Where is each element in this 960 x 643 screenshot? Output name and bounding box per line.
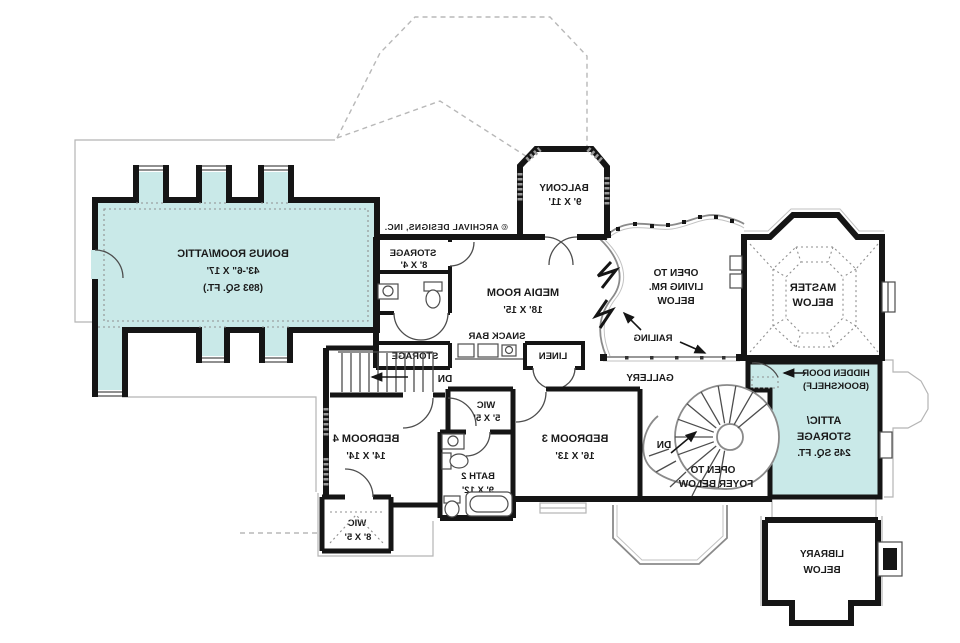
attic-label-3: 245 SQ. FT.	[797, 448, 851, 459]
master-dims: BELOW	[792, 297, 834, 309]
toilet-icon-3	[445, 501, 459, 517]
attic-label-2: STORAGE	[797, 431, 851, 443]
railing-label: RAILING	[633, 333, 672, 344]
wic-small-label: WIC	[477, 400, 496, 411]
balcony-label: BALCONY	[539, 183, 589, 194]
upper-storage-bath-media: STORAGE 8' X 4' MEDIA ROOM 18' X 15' SNA…	[376, 237, 624, 389]
bedroom3-label: BEDROOM 3	[542, 433, 609, 445]
spiral-dn-label: DN	[657, 440, 671, 451]
bonus-room-label: BONUS ROOM/ATTIC	[177, 248, 289, 260]
snack-bar-label: SNACK BAR	[468, 331, 525, 342]
hidden-door-label: HIDDEN DOOR	[802, 368, 870, 379]
toilet-icon-2	[450, 454, 468, 468]
open-living-line1: OPEN TO	[653, 268, 698, 279]
attic-label-1: ATTIC/	[807, 415, 842, 427]
bedroom3-dims: 16' X 13'	[555, 451, 594, 462]
wic-small-door-swing	[448, 398, 476, 426]
railing-arrow-up-icon	[624, 313, 641, 330]
wic-small-dims: 5' X 5'	[474, 413, 501, 424]
media-room-label: MEDIA ROOM	[487, 287, 559, 299]
wic-bedroom4-door-swing	[345, 469, 373, 497]
attic-window	[880, 432, 892, 458]
hidden-door-sub: (BOOKSHELF)	[803, 381, 869, 392]
gallery-label: GALLERY	[626, 373, 674, 384]
storage-upper-label: STORAGE	[390, 248, 437, 259]
storage-door-swing	[450, 242, 474, 266]
toilet-icon	[426, 290, 440, 308]
open-to-living: OPEN TO LIVING RM. BELOW RAILING	[604, 215, 744, 353]
storage-upper-dims: 8' X 4'	[401, 260, 428, 271]
bonus-room-walls	[95, 168, 377, 394]
stairs-dn-label: DN	[438, 374, 452, 385]
bedroom3-door-swing	[516, 392, 546, 422]
bedroom4-door-swing	[403, 398, 433, 428]
spiral-stair: DN OPEN TO FOYER BELOW	[643, 385, 779, 496]
sink-icon	[383, 286, 393, 296]
chimney	[878, 542, 902, 576]
balcony: BALCONY 9' X 11'	[520, 149, 607, 265]
floor-plan-page: BONUS ROOM/ATTIC 43'-6" X 17' (893 SQ. F…	[0, 0, 960, 643]
upper-bath	[376, 282, 450, 313]
media-curved-wall	[596, 239, 624, 356]
bay-window-below-outline	[540, 503, 727, 564]
bath2-label: BATH 2	[461, 471, 495, 482]
gallery: GALLERY	[600, 354, 743, 384]
balcony-door-swing	[545, 237, 577, 265]
master-below: MASTER BELOW	[730, 215, 895, 358]
wic-bedroom4-label: WIC	[348, 518, 367, 529]
open-foyer-line1: OPEN TO	[690, 465, 735, 476]
linen-closet: LINEN	[525, 343, 583, 389]
bedroom4-label: BEDROOM 4	[332, 433, 400, 445]
bonus-room-dims: 43'-6" X 17'	[207, 266, 260, 277]
wic-bedroom4-dims: 8' X 5'	[345, 532, 372, 543]
designer-credit: © ARCHIVAL DESIGNS, INC.	[384, 222, 507, 232]
snack-bar: SNACK BAR	[455, 331, 526, 359]
master-label: MASTER	[790, 282, 837, 294]
floor-plan-drawing: BONUS ROOM/ATTIC 43'-6" X 17' (893 SQ. F…	[0, 0, 960, 643]
double-door-swing	[394, 313, 448, 340]
linen-label: LINEN	[539, 351, 568, 362]
bonus-door-gap	[91, 250, 99, 279]
balcony-dims: 9' X 11'	[548, 197, 581, 208]
open-foyer-line2: FOYER BELOW	[678, 479, 753, 490]
railing-arrow-down-icon	[680, 342, 705, 353]
bonus-room: BONUS ROOM/ATTIC 43'-6" X 17' (893 SQ. F…	[91, 164, 377, 398]
open-living-line3: BELOW	[657, 296, 695, 307]
bath2-door-swing	[466, 432, 490, 456]
bonus-room-area: (893 SQ. FT.)	[203, 283, 263, 294]
library-label: LIBRARY	[800, 549, 844, 560]
media-room-dims: 18' X 15'	[503, 305, 542, 316]
bedroom4-dims: 14' X 14'	[346, 451, 385, 462]
open-living-line2: LIVING RM.	[649, 282, 704, 293]
library-sub: BELOW	[803, 565, 841, 576]
